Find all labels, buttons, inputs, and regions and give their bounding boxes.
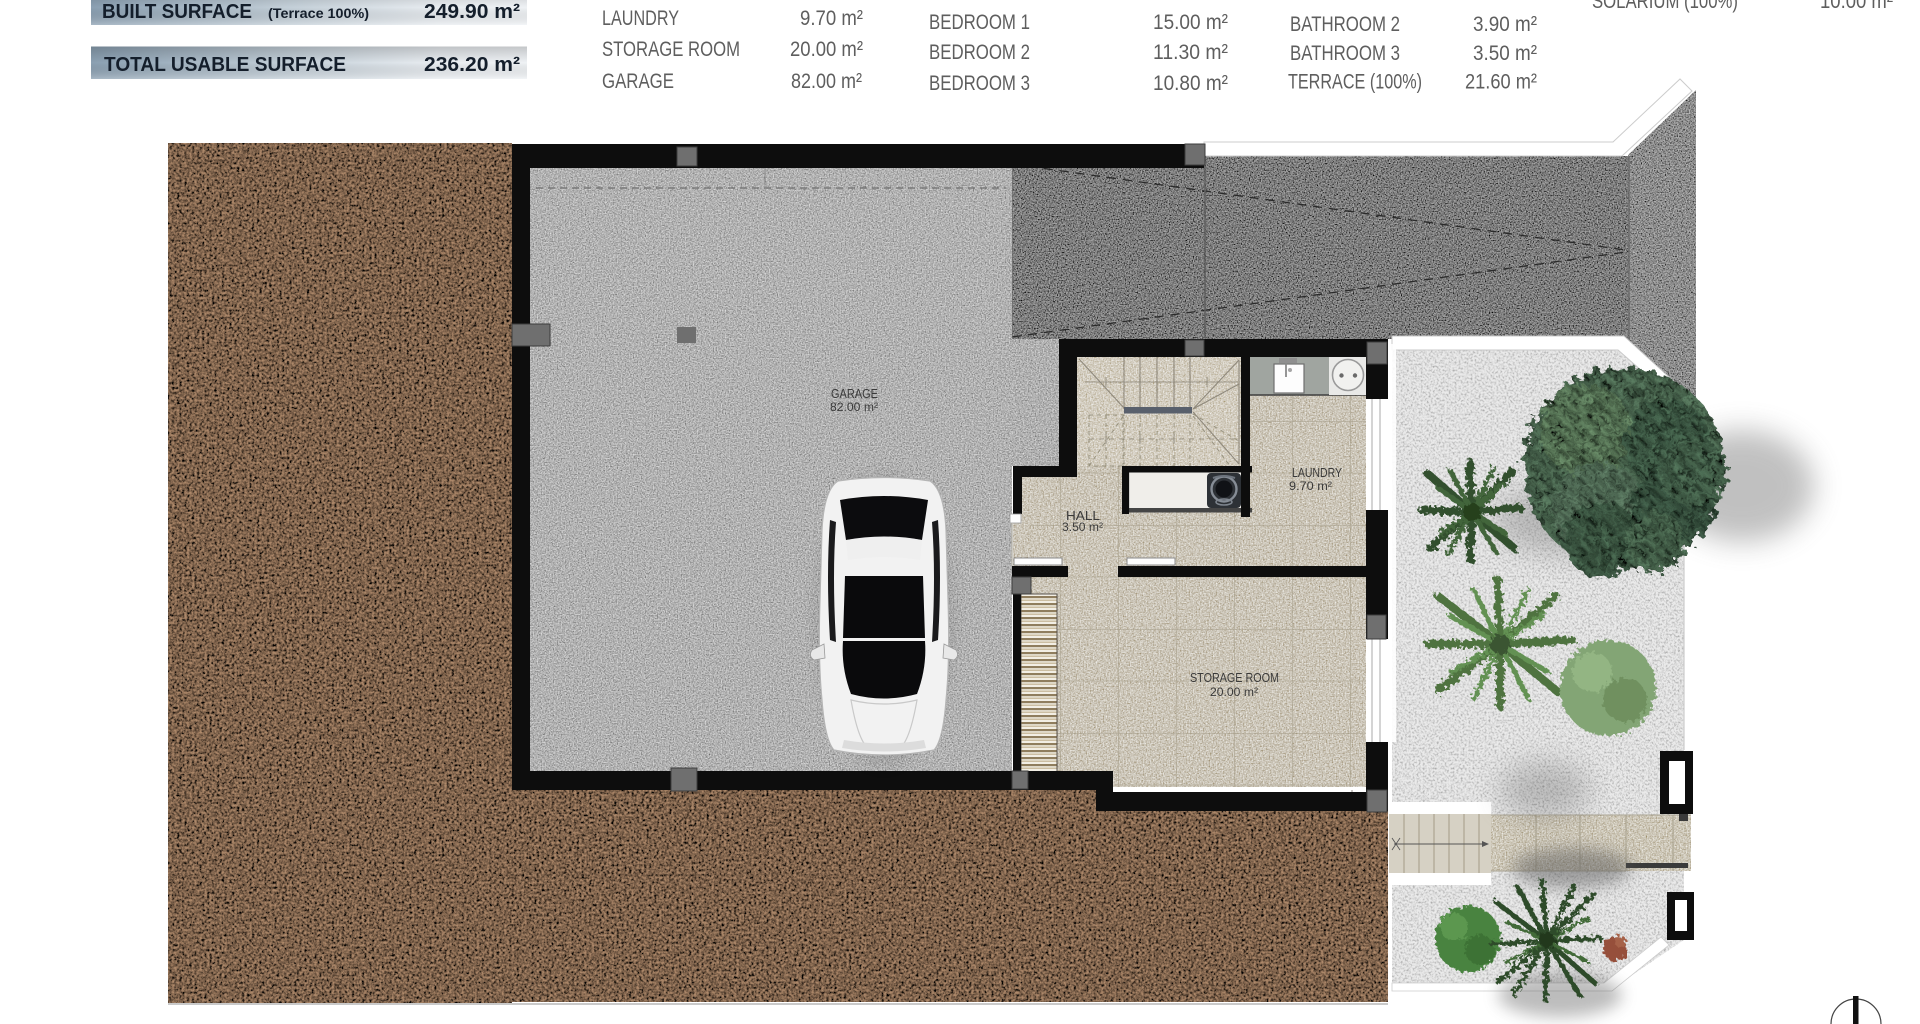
svg-text:236.20 m²: 236.20 m² xyxy=(424,54,520,76)
svg-text:LAUNDRY: LAUNDRY xyxy=(602,7,679,30)
svg-text:9.70 m²: 9.70 m² xyxy=(1289,479,1332,493)
svg-text:GARAGE: GARAGE xyxy=(831,386,878,401)
svg-text:TERRACE (100%): TERRACE (100%) xyxy=(1288,71,1422,94)
svg-text:BUILT SURFACE: BUILT SURFACE xyxy=(102,1,252,23)
svg-text:BEDROOM 2: BEDROOM 2 xyxy=(929,41,1030,64)
svg-text:10.80 m²: 10.80 m² xyxy=(1153,72,1228,95)
svg-text:BEDROOM 3: BEDROOM 3 xyxy=(929,72,1030,95)
svg-text:3.50 m²: 3.50 m² xyxy=(1473,42,1537,65)
svg-text:LAUNDRY: LAUNDRY xyxy=(1292,465,1342,480)
svg-text:BEDROOM 1: BEDROOM 1 xyxy=(929,11,1030,34)
svg-text:249.90 m²: 249.90 m² xyxy=(424,1,520,23)
svg-text:82.00 m²: 82.00 m² xyxy=(830,400,878,414)
svg-text:10.00 m²: 10.00 m² xyxy=(1820,0,1893,13)
svg-text:82.00 m²: 82.00 m² xyxy=(791,70,862,93)
svg-text:20.00 m²: 20.00 m² xyxy=(790,38,863,61)
svg-text:GARAGE: GARAGE xyxy=(602,70,674,93)
svg-text:BATHROOM 2: BATHROOM 2 xyxy=(1290,13,1400,36)
svg-text:BATHROOM 3: BATHROOM 3 xyxy=(1290,42,1400,65)
svg-text:(Terrace 100%): (Terrace 100%) xyxy=(268,6,369,21)
svg-text:STORAGE ROOM: STORAGE ROOM xyxy=(602,38,740,61)
svg-text:21.60 m²: 21.60 m² xyxy=(1465,71,1537,94)
svg-text:9.70 m²: 9.70 m² xyxy=(800,7,863,30)
svg-text:SOLARIUM (100%): SOLARIUM (100%) xyxy=(1592,0,1738,13)
svg-text:20.00 m²: 20.00 m² xyxy=(1210,685,1258,699)
svg-text:3.50 m²: 3.50 m² xyxy=(1062,520,1103,534)
svg-text:11.30 m²: 11.30 m² xyxy=(1153,41,1228,64)
svg-text:3.90 m²: 3.90 m² xyxy=(1473,13,1537,36)
svg-text:STORAGE ROOM: STORAGE ROOM xyxy=(1190,670,1279,685)
svg-text:TOTAL USABLE SURFACE: TOTAL USABLE SURFACE xyxy=(104,54,346,76)
svg-text:15.00 m²: 15.00 m² xyxy=(1153,11,1228,34)
